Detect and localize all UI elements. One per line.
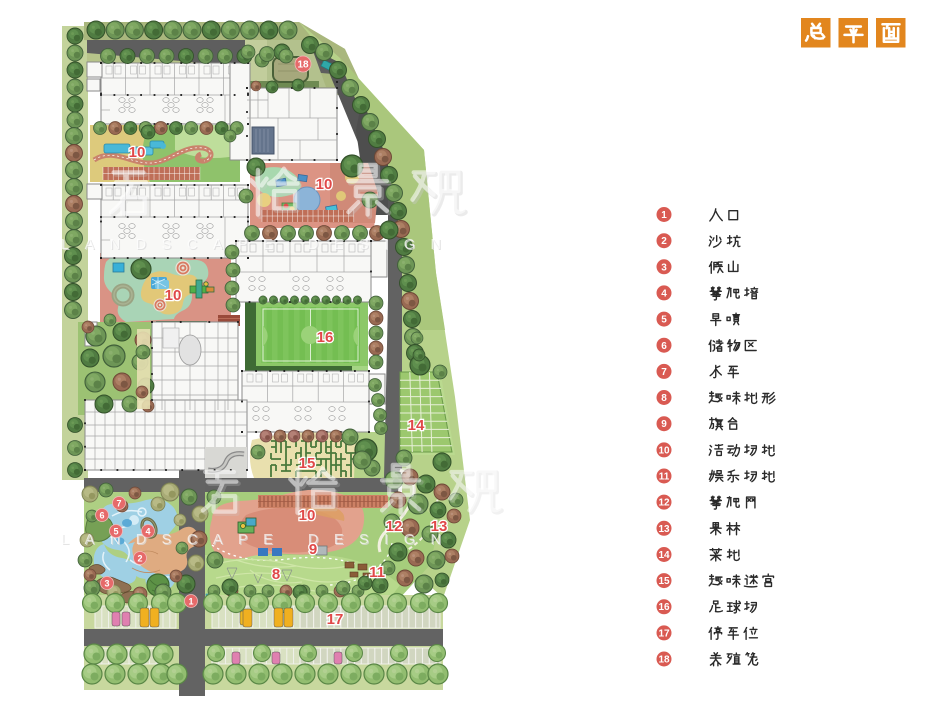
svg-text:7: 7 xyxy=(661,367,667,378)
svg-text:9: 9 xyxy=(309,541,317,558)
svg-text:6: 6 xyxy=(99,510,104,520)
svg-text:3: 3 xyxy=(661,262,667,273)
svg-text:10: 10 xyxy=(316,176,333,193)
svg-text:17: 17 xyxy=(327,611,344,628)
svg-text:3: 3 xyxy=(104,578,109,588)
svg-text:18: 18 xyxy=(658,655,670,666)
svg-text:7: 7 xyxy=(116,498,121,508)
svg-text:5: 5 xyxy=(113,526,118,536)
svg-text:10: 10 xyxy=(299,507,316,524)
svg-text:12: 12 xyxy=(386,518,403,535)
svg-text:14: 14 xyxy=(408,417,425,434)
svg-text:6: 6 xyxy=(661,341,667,352)
svg-text:1: 1 xyxy=(188,596,193,606)
svg-text:11: 11 xyxy=(369,564,385,581)
svg-text:10: 10 xyxy=(165,287,182,304)
svg-text:4: 4 xyxy=(661,288,667,299)
svg-text:13: 13 xyxy=(431,518,448,535)
svg-text:18: 18 xyxy=(297,59,309,70)
svg-text:10: 10 xyxy=(129,144,146,161)
svg-text:11: 11 xyxy=(659,472,670,483)
svg-text:16: 16 xyxy=(658,602,670,613)
svg-text:10: 10 xyxy=(658,445,670,456)
svg-text:16: 16 xyxy=(317,329,334,346)
svg-text:17: 17 xyxy=(658,628,670,639)
svg-text:LANDSCAPE DESIGN: LANDSCAPE DESIGN xyxy=(61,237,456,253)
svg-text:14: 14 xyxy=(658,550,670,561)
svg-text:2: 2 xyxy=(661,236,667,247)
svg-text:1: 1 xyxy=(661,210,667,221)
svg-text:13: 13 xyxy=(658,524,670,535)
svg-text:5: 5 xyxy=(661,315,667,326)
svg-text:15: 15 xyxy=(658,576,670,587)
svg-text:2: 2 xyxy=(137,553,142,563)
svg-text:8: 8 xyxy=(661,393,667,404)
svg-text:12: 12 xyxy=(658,498,670,509)
svg-text:15: 15 xyxy=(299,455,316,472)
svg-text:4: 4 xyxy=(145,526,150,536)
svg-text:8: 8 xyxy=(272,566,280,583)
svg-text:9: 9 xyxy=(661,419,667,430)
